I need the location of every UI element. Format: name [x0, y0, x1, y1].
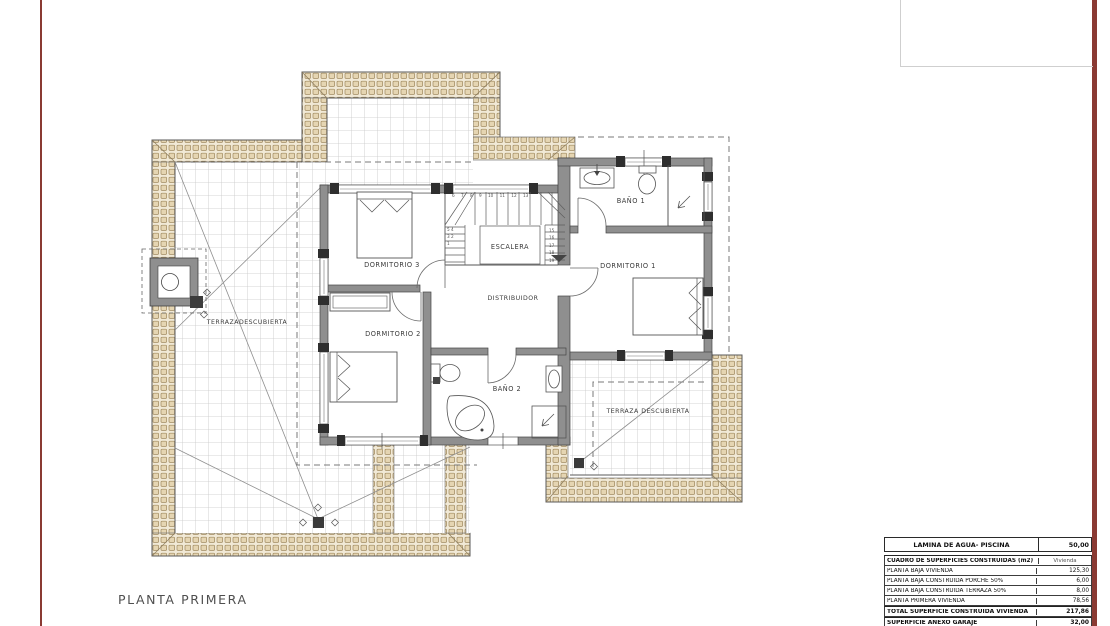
table-cell-value: 78,56 [1036, 598, 1091, 604]
table-cell-value: 6,00 [1036, 578, 1091, 584]
toilet-tank [639, 166, 656, 173]
table-cell-value: 32,00 [1036, 620, 1091, 626]
drawing-sheet: DORMITORIO 3 DORMITORIO 2 DORMITORIO 1 B… [0, 0, 1110, 626]
door-bano-1 [578, 198, 606, 226]
table-cell-value: 217,86 [1036, 609, 1091, 615]
table-row-garaje: SUPERFICIE ANEXO GARAJE 32,00 [884, 617, 1092, 626]
wall [606, 226, 712, 233]
roof-tile-band [473, 137, 575, 160]
room-label-terraza-izquierda: TERRAZADESCUBIERTA [206, 319, 288, 326]
table-cell-label: PLANTA BAJA CONSTRUIDA PORCHE 50% [885, 578, 1036, 584]
roof-tile-strip [445, 445, 466, 533]
drain [313, 517, 324, 528]
shower-arrow-icon [542, 414, 554, 426]
surfaces-summary-table: LAMINA DE AGUA- PISCINA 50,00 CUADRO DE … [884, 537, 1092, 626]
door-bano-2 [488, 354, 516, 383]
table-cell-label: SUPERFICIE ANEXO GARAJE [885, 620, 1036, 626]
roof-tile-band [546, 478, 742, 502]
terrace-paving [327, 98, 473, 185]
wall [431, 348, 488, 355]
door-dormitorio-1 [570, 268, 598, 296]
room-label-escalera: ESCALERA [491, 243, 529, 251]
table-row: PLANTA BAJA CONSTRUIDA TERRAZA 50% 8,00 [884, 586, 1092, 596]
wall [423, 292, 431, 445]
room-label-dormitorio-3: DORMITORIO 3 [364, 261, 420, 269]
room-label-dormitorio-2: DORMITORIO 2 [365, 330, 421, 338]
table-cell-label: PLANTA BAJA VIVIENDA [885, 568, 1036, 574]
wall [516, 348, 566, 355]
room-label-dormitorio-1: DORMITORIO 1 [600, 262, 656, 270]
door-dormitorio-3 [417, 260, 445, 288]
table-cell-label: LAMINA DE AGUA- PISCINA [885, 541, 1038, 549]
toilet-bowl [639, 174, 656, 194]
toilet-bowl [440, 365, 460, 382]
stair-numbers-left: 5 4 3 2 1 [447, 226, 455, 247]
stair-numbers-top: 6 7 8 9 10 11 12 13 [452, 192, 548, 199]
right-terrace [546, 355, 742, 502]
table-header-row: CUADRO DE SUPERFICIES CONSTRUIDAS (m2) V… [884, 555, 1092, 566]
terrace-paving [570, 360, 712, 475]
chimney-duct [190, 296, 203, 308]
plan-title: PLANTA PRIMERA [118, 592, 248, 607]
drain [574, 458, 584, 468]
table-cell-label: PLANTA BAJA CONSTRUIDA TERRAZA 50% [885, 588, 1036, 594]
closet-inner [333, 296, 387, 308]
room-label-distribuidor: DISTRIBUIDOR [488, 295, 539, 302]
table-cell-label: TOTAL SUPERFICIE CONSTRUIDA VIVIENDA [885, 609, 1036, 615]
room-label-terraza-derecha: TERRAZA DESCUBIERTA [605, 408, 689, 415]
table-cell-value: 50,00 [1038, 538, 1091, 551]
bathroom-1-fixtures [580, 164, 704, 226]
room-label-bano-1: BAÑO 1 [617, 196, 645, 205]
roof-tile-band [152, 533, 470, 556]
bathroom-2-fixtures [431, 364, 566, 440]
table-row-pool: LAMINA DE AGUA- PISCINA 50,00 [884, 537, 1092, 552]
table-row: PLANTA BAJA VIVIENDA 125,30 [884, 566, 1092, 576]
bed-dormitorio-1 [633, 278, 703, 335]
roof-tile-band [152, 140, 175, 556]
door-dormitorio-2 [392, 292, 421, 321]
terrace-paving [175, 185, 320, 533]
table-cell-label: PLANTA PRIMERA VIVIENDA [885, 598, 1036, 604]
roof-tile-band [546, 445, 568, 478]
roof-tile-band [152, 140, 302, 162]
terrace-paving [175, 162, 327, 185]
sink-basin [549, 370, 560, 388]
stair-numbers-right: 15 16 17 18 19 [549, 227, 560, 264]
shower-arrow-icon [678, 196, 690, 208]
table-row: PLANTA BAJA CONSTRUIDA PORCHE 50% 6,00 [884, 576, 1092, 586]
toilet-hinge [433, 377, 440, 384]
shower-tray [668, 166, 704, 226]
chimney-flue [162, 274, 179, 291]
table-total-row: TOTAL SUPERFICIE CONSTRUIDA VIVIENDA 217… [884, 606, 1092, 617]
bed-dormitorio-2 [330, 352, 397, 402]
bed-dormitorio-3 [357, 192, 412, 258]
wall [328, 285, 420, 292]
table-cell-value: 8,00 [1036, 588, 1091, 594]
table-cell-label: CUADRO DE SUPERFICIES CONSTRUIDAS (m2) [885, 558, 1038, 564]
wall [570, 226, 578, 233]
table-row: PLANTA PRIMERA VIVIENDA 78,56 [884, 596, 1092, 606]
roof-tile-band [302, 98, 327, 162]
roof-tile-band [302, 72, 500, 98]
roof-tile-strip [373, 445, 394, 533]
room-label-bano-2: BAÑO 2 [493, 384, 521, 393]
table-cell-value: 125,30 [1036, 568, 1091, 574]
table-cell-value: Vivienda [1038, 558, 1091, 564]
floor-plan-drawing: DORMITORIO 3 DORMITORIO 2 DORMITORIO 1 B… [0, 0, 1110, 626]
roof-tile-band [473, 98, 500, 137]
bathtub-drain [481, 429, 484, 432]
